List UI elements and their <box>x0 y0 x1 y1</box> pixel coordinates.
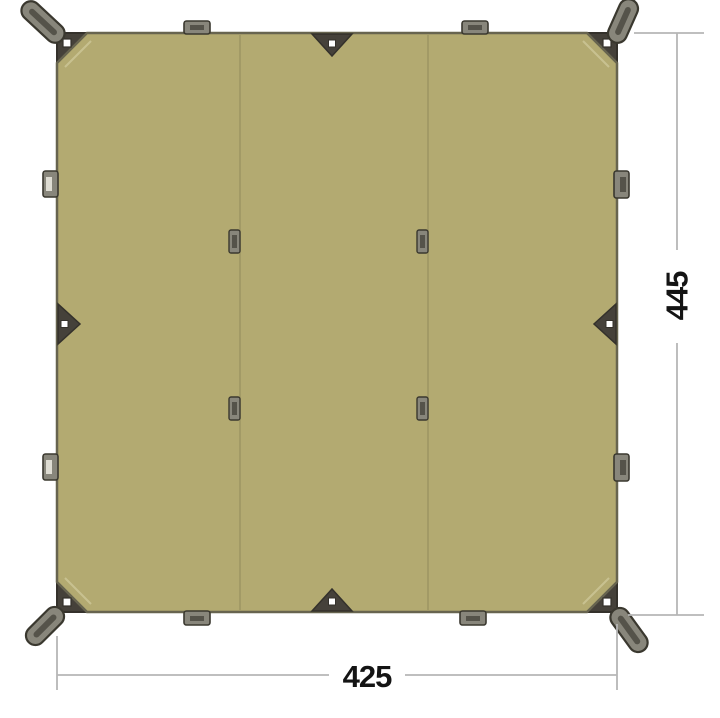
tarp-dimension-diagram: 445 425 <box>0 0 720 718</box>
edge-loop-left-upper-slot <box>46 177 52 191</box>
seam-tab-right-lower-slot <box>420 402 425 415</box>
diagram-canvas: 445 425 <box>0 0 720 718</box>
seam-tab-left-lower-slot <box>232 402 237 415</box>
edge-grommet-right <box>606 321 613 328</box>
edge-grommet-top <box>329 40 336 47</box>
edge-grommet-left <box>61 321 68 328</box>
corner-strap-bottom-left <box>22 603 68 649</box>
edge-loop-right-upper-slot <box>620 177 626 192</box>
corner-strap-bottom-right <box>607 604 652 656</box>
tarp-body <box>57 33 617 612</box>
edge-loop-top-left-slot <box>190 25 204 30</box>
edge-loop-left-lower-slot <box>46 460 52 474</box>
corner-strap-top-left <box>18 0 69 47</box>
edge-loop-right-lower-slot <box>620 460 626 475</box>
height-dimension-label: 445 <box>660 271 695 320</box>
corner-grommet-bottom-left <box>63 598 71 606</box>
edge-loop-top-right-slot <box>468 25 482 30</box>
corner-strap-top-right <box>605 0 641 46</box>
edge-grommet-bottom <box>329 598 336 605</box>
corner-grommet-top-left <box>63 39 71 47</box>
edge-loop-bottom-right-slot <box>466 616 480 621</box>
edge-loop-bottom-left-slot <box>190 616 204 621</box>
seam-tab-left-upper-slot <box>232 235 237 248</box>
width-dimension-label: 425 <box>343 659 392 694</box>
corner-grommet-bottom-right <box>603 598 611 606</box>
seam-tab-right-upper-slot <box>420 235 425 248</box>
